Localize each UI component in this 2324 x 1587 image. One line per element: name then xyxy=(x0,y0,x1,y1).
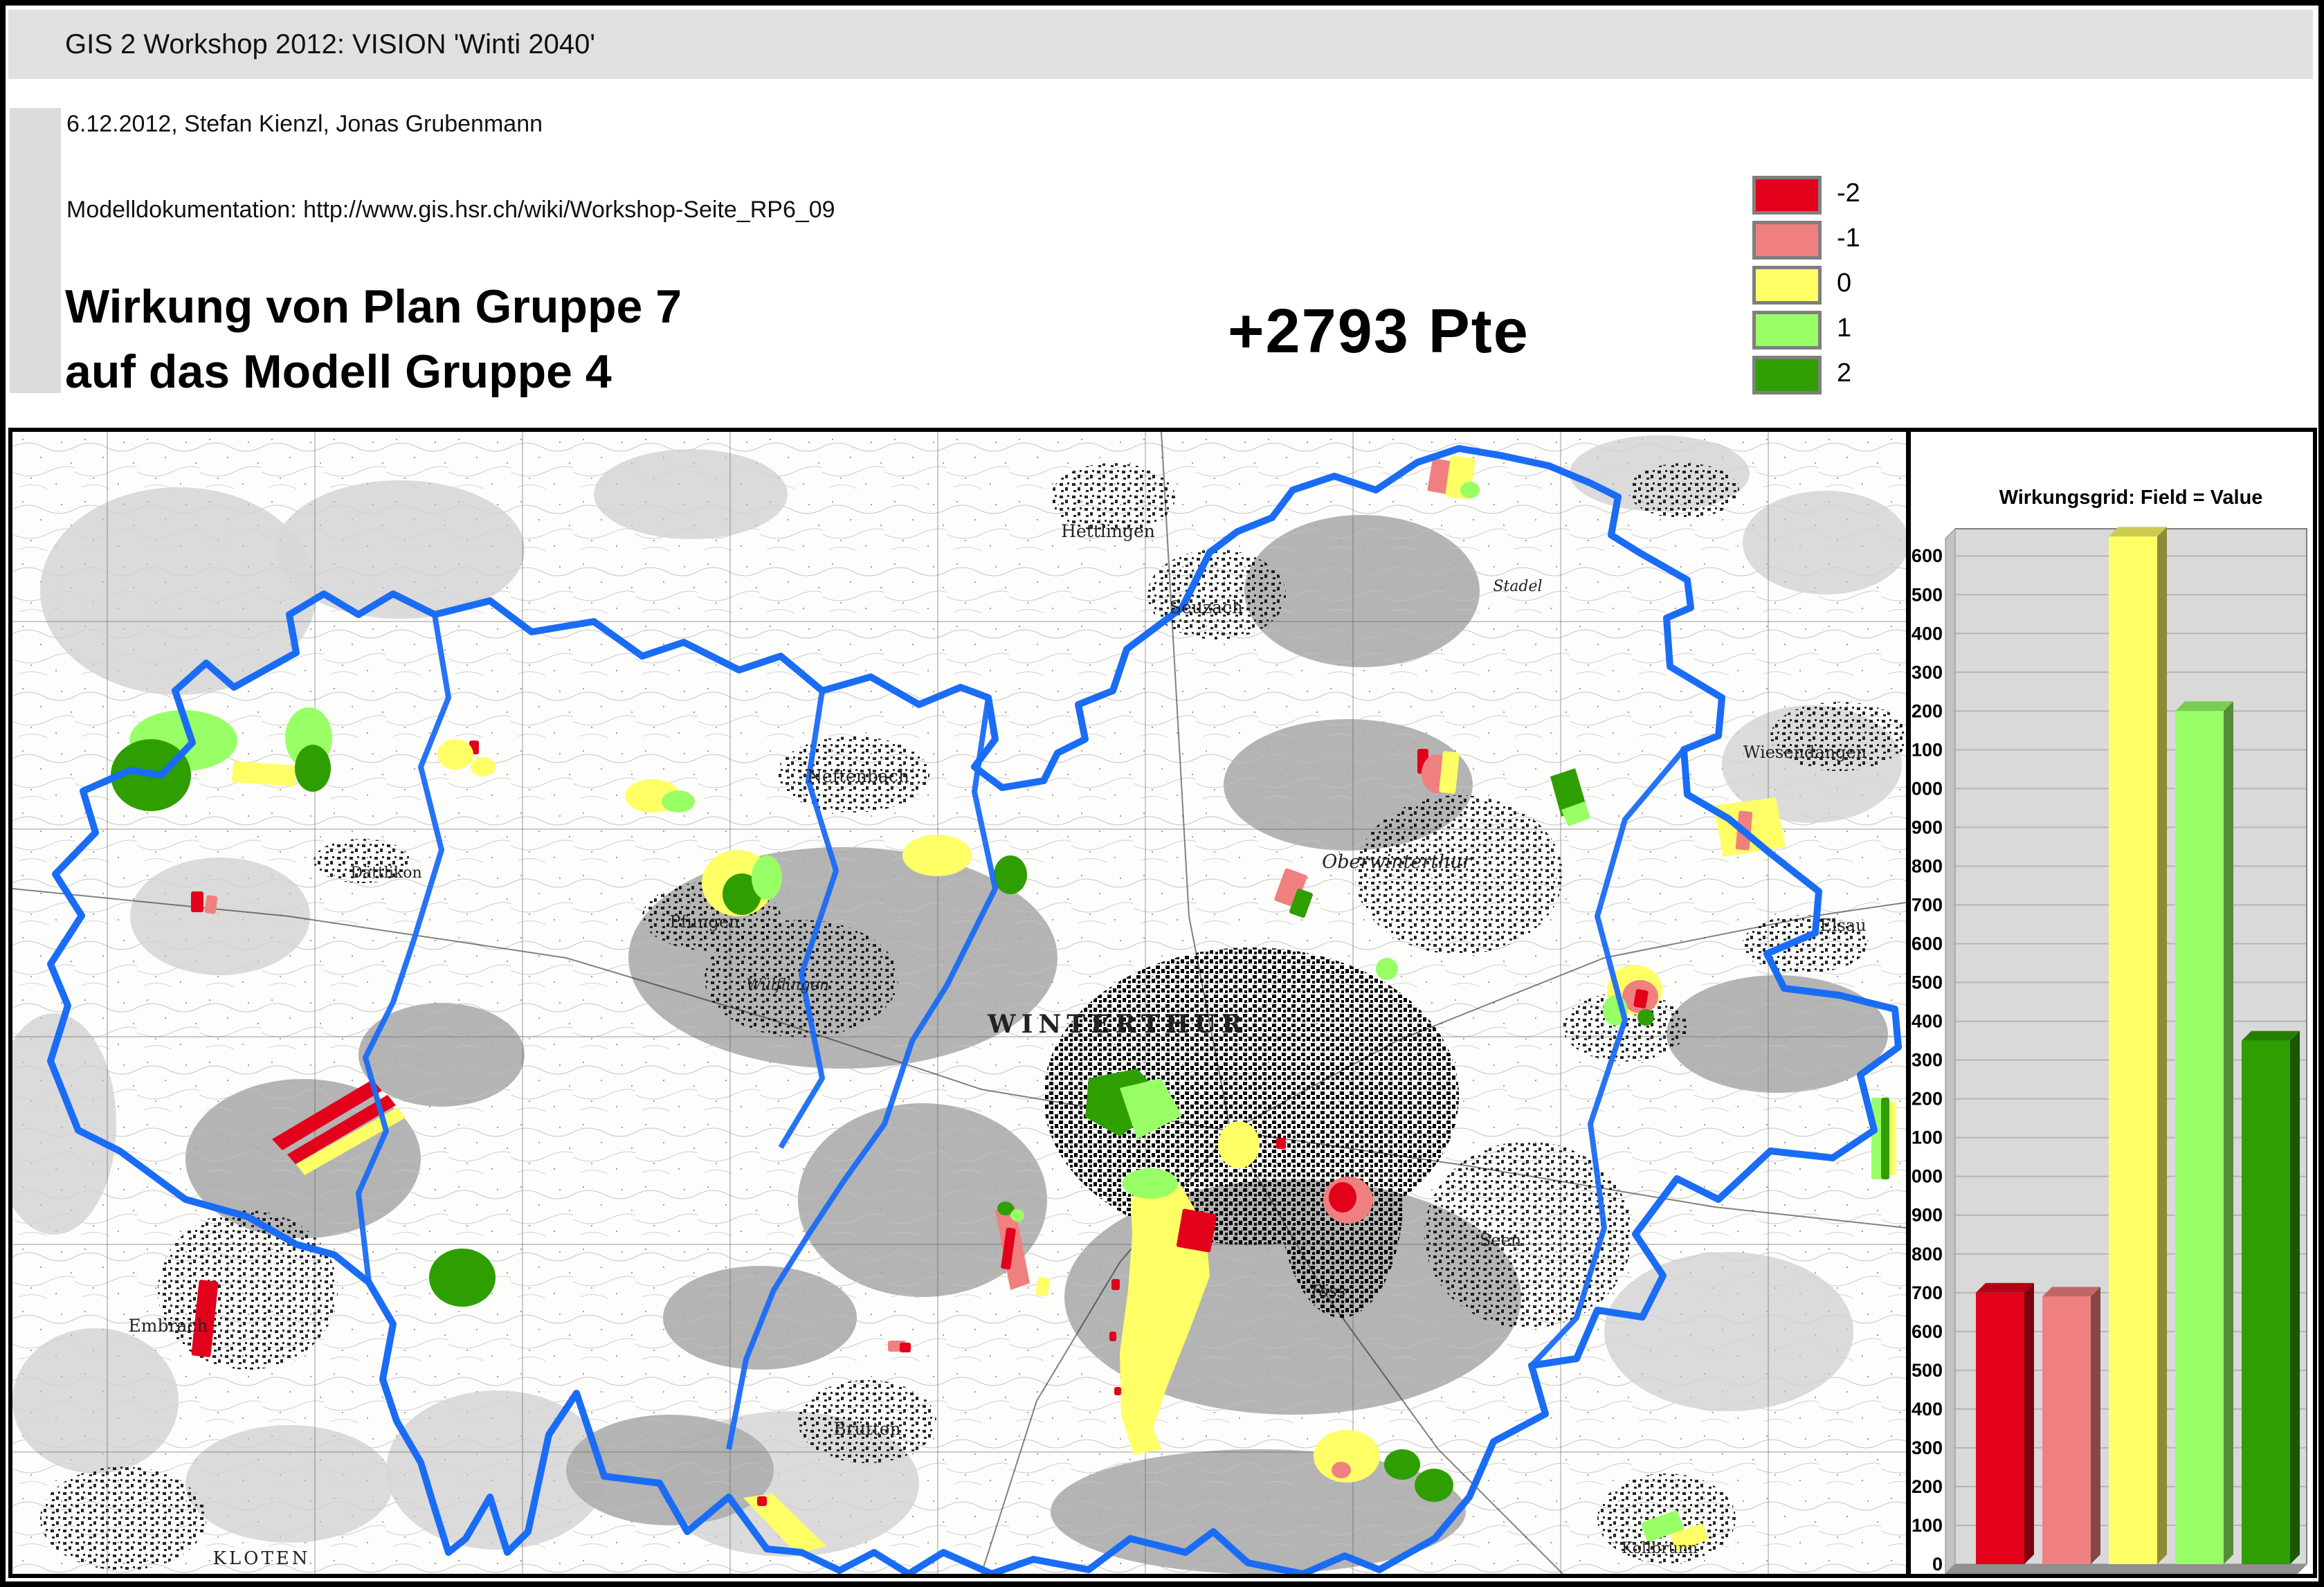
city-label-dättlikon: Dättlikon xyxy=(350,864,421,882)
city-label-seuzach: Seuzach xyxy=(1170,597,1243,617)
chart-bar-0 xyxy=(2109,527,2167,1564)
legend-swatch xyxy=(1752,221,1822,260)
chart-tick-label: 2'100 xyxy=(1911,739,1943,760)
chart-3d-wall xyxy=(1945,529,1955,1574)
score-value: +2793 Pte xyxy=(1228,296,1529,368)
chart-canvas: Wirkungsgrid: Field = Value0100200300400… xyxy=(1911,432,2313,1574)
city-label-embrach: Embrach xyxy=(129,1316,208,1336)
city-label-neftenbach: Neftenbach xyxy=(807,766,909,786)
slide-root: GIS 2 Workshop 2012: VISION 'Winti 2040'… xyxy=(0,0,2324,1587)
legend-swatch xyxy=(1752,176,1822,215)
city-label-brütten: Brütten xyxy=(833,1419,900,1439)
legend-label: 2 xyxy=(1837,359,1851,388)
chart-tick-label: 700 xyxy=(1912,1282,1943,1303)
impact-chart-panel: Wirkungsgrid: Field = Value0100200300400… xyxy=(1911,432,2313,1574)
chart-tick-label: 100 xyxy=(1912,1515,1943,1536)
content-box: WINTERTHUROberwinterthurSeuzachHettlinge… xyxy=(8,428,2317,1578)
topo-map: WINTERTHUROberwinterthurSeuzachHettlinge… xyxy=(12,432,1906,1574)
map-canvas: WINTERTHUROberwinterthurSeuzachHettlinge… xyxy=(12,432,1906,1574)
chart-tick-label: 2'600 xyxy=(1911,545,1943,566)
model-doc-line: Modelldokumentation: http://www.gis.hsr.… xyxy=(66,197,835,224)
legend-swatch xyxy=(1752,311,1822,350)
legend-label: 0 xyxy=(1837,269,1851,298)
subtitle: 6.12.2012, Stefan Kienzl, Jonas Grubenma… xyxy=(66,111,543,138)
main-title-line2: auf das Modell Gruppe 4 xyxy=(65,339,682,404)
city-label-töss: Töss xyxy=(1309,1282,1345,1301)
legend-swatch xyxy=(1752,266,1822,305)
chart-tick-label: 1'100 xyxy=(1911,1127,1943,1148)
chart-tick-label: 1'600 xyxy=(1911,934,1943,954)
map-chart-divider xyxy=(1906,432,1911,1574)
chart-tick-label: 1'800 xyxy=(1911,855,1943,876)
legend-label: -1 xyxy=(1837,224,1860,253)
chart-tick-label: 2'500 xyxy=(1911,584,1943,605)
chart-tick-label: 800 xyxy=(1912,1244,1943,1264)
city-label-kloten: KLOTEN xyxy=(212,1548,310,1569)
chart-tick-label: 2'400 xyxy=(1911,623,1943,644)
page-title: GIS 2 Workshop 2012: VISION 'Winti 2040' xyxy=(65,10,595,79)
legend-swatch xyxy=(1752,356,1822,395)
chart-bar--2 xyxy=(1976,1283,2034,1564)
main-title-line1: Wirkung von Plan Gruppe 7 xyxy=(65,274,682,339)
title-bar: GIS 2 Workshop 2012: VISION 'Winti 2040' xyxy=(8,10,2313,79)
chart-title: Wirkungsgrid: Field = Value xyxy=(1999,487,2263,509)
city-label-wiesendangen: Wiesendangen xyxy=(1743,743,1867,762)
legend-label: -2 xyxy=(1837,179,1860,208)
chart-bar--1 xyxy=(2042,1287,2100,1564)
chart-tick-label: 1'400 xyxy=(1911,1011,1943,1032)
legend-label: 1 xyxy=(1837,314,1851,343)
main-title: Wirkung von Plan Gruppe 7 auf das Modell… xyxy=(65,274,682,404)
chart-tick-label: 1'500 xyxy=(1911,972,1943,993)
chart-tick-label: 0 xyxy=(1932,1554,1943,1574)
chart-tick-label: 1'300 xyxy=(1911,1050,1943,1071)
city-label-seen: Seen xyxy=(1480,1231,1521,1250)
chart-3d-floor xyxy=(1945,1564,2307,1574)
left-decor-strip xyxy=(10,108,61,393)
chart-tick-label: 1'700 xyxy=(1911,894,1943,915)
city-label-stadel: Stadel xyxy=(1493,578,1542,595)
chart-tick-label: 1'200 xyxy=(1911,1089,1943,1109)
city-label-wülflingen: Wülflingen xyxy=(746,977,829,994)
city-label-hettlingen: Hettlingen xyxy=(1061,521,1155,541)
chart-tick-label: 2'200 xyxy=(1911,700,1943,721)
chart-tick-label: 300 xyxy=(1912,1438,1943,1458)
city-label-oberwinterthur: Oberwinterthur xyxy=(1322,851,1473,873)
chart-tick-label: 2'300 xyxy=(1911,662,1943,682)
chart-tick-label: 200 xyxy=(1912,1476,1943,1497)
chart-bar-2 xyxy=(2242,1031,2300,1564)
city-label-pfungen: Pfungen xyxy=(670,912,740,932)
chart-tick-label: 2'000 xyxy=(1911,778,1943,799)
chart-tick-label: 1'900 xyxy=(1911,817,1943,837)
city-label-elsau: Elsau xyxy=(1819,916,1866,935)
chart-tick-label: 600 xyxy=(1912,1321,1943,1342)
chart-tick-label: 1'000 xyxy=(1911,1166,1943,1187)
chart-tick-label: 500 xyxy=(1912,1360,1943,1381)
chart-bar-1 xyxy=(2175,701,2233,1564)
city-label-winterthur: WINTERTHUR xyxy=(987,1010,1248,1039)
city-label-kollbrunn: Kollbrunn xyxy=(1622,1540,1698,1557)
chart-tick-label: 400 xyxy=(1912,1399,1943,1420)
chart-tick-label: 900 xyxy=(1912,1205,1943,1226)
